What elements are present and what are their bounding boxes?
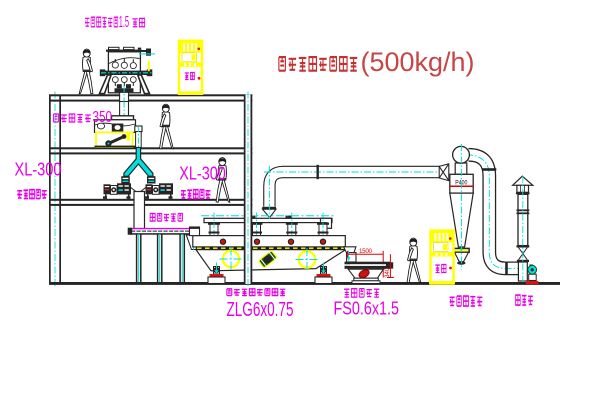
svg-text:ZLG6x0.75: ZLG6x0.75 [227, 298, 294, 321]
svg-text:350: 350 [93, 109, 113, 126]
svg-text:XL-300: XL-300 [179, 163, 226, 184]
svg-text:(500kg/h): (500kg/h) [361, 47, 475, 77]
svg-text:1.5: 1.5 [119, 14, 129, 31]
svg-text:FS0.6x1.5: FS0.6x1.5 [334, 298, 400, 319]
svg-text:340: 340 [385, 267, 391, 278]
svg-text:XL-300: XL-300 [15, 159, 62, 180]
svg-text:1500: 1500 [359, 248, 373, 255]
